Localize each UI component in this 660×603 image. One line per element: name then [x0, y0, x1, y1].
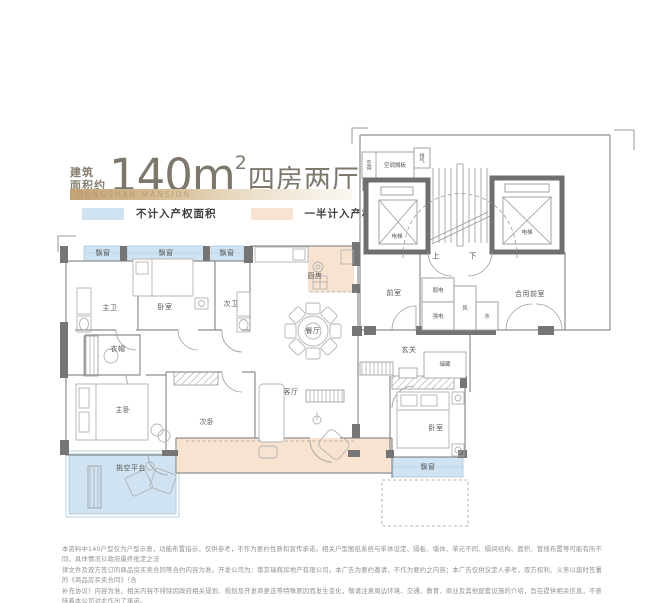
- label-exhaust: 排气: [419, 153, 426, 163]
- room-label-platform: 挑空平台: [116, 463, 146, 473]
- disclaimer-line: 本资料中140户型仅为户型示意，功能布置指示，仅供参考，不作为要约性质和宣传承诺…: [62, 545, 602, 566]
- room-label-kitchen: 厨房: [308, 271, 323, 281]
- room-label-living-room: 客厅: [284, 387, 299, 397]
- room-label-strong-electric: 强电: [432, 312, 443, 320]
- room-label-front-room: 前室: [387, 288, 402, 298]
- room-label-bay-window-2: 飘窗: [159, 248, 174, 258]
- elevator-right-shaft: [492, 178, 562, 252]
- room-label-dining-room: 餐厅: [306, 326, 321, 336]
- disclaimer-line: 律文件及双方签订的商品房买卖合同等合约内容为准。开发公司为：南京瑞辉房地产有限公…: [62, 566, 602, 587]
- zone-platform: [66, 451, 179, 517]
- room-label-bay-window-4: 飘窗: [421, 462, 436, 472]
- room-label-storage: 储藏: [439, 360, 450, 368]
- room-label-shared-front-room: 合用前室: [515, 289, 545, 299]
- disclaimer-line: 补充协议）内容为准。相关内容不排除因政府相关规划、规划及开发商更迭等特殊原因而发…: [62, 587, 602, 603]
- label-ac-shelf: 空调搁板: [384, 161, 406, 169]
- room-label-bedroom-top: 卧室: [158, 302, 173, 312]
- elevator-left-shaft: [366, 180, 428, 252]
- room-label-cloakroom: 衣帽: [111, 344, 126, 354]
- disclaimer: 本资料中140户型仅为户型示意，功能布置指示，仅供参考，不作为要约性质和宣传承诺…: [62, 545, 602, 603]
- stairs-down-label: 下: [469, 251, 477, 262]
- room-label-air-shaft: 风: [462, 304, 468, 312]
- room-label-master-bedroom: 主卧: [116, 405, 131, 415]
- room-label-foyer: 玄关: [402, 345, 417, 355]
- room-label-bay-window-1: 飘窗: [96, 248, 111, 258]
- room-label-elevator-right: 电梯: [521, 228, 532, 236]
- room-label-master-bath: 主卫: [103, 303, 118, 313]
- floorplan-drawing: [0, 0, 660, 603]
- room-label-water-shaft: 水: [484, 312, 490, 320]
- room-label-weak-electric: 弱电: [432, 286, 443, 294]
- room-label-second-bedroom: 次卧: [200, 417, 215, 427]
- room-label-bedroom-right: 卧室: [429, 423, 444, 433]
- stairs-up-label: 上: [432, 251, 440, 262]
- room-label-bay-window-3: 飘窗: [220, 248, 235, 258]
- room-label-second-bath: 次卫: [224, 299, 239, 309]
- flyer-page: 建筑 面积约 140m2 四房两厅两卫 DONGSHAN MANSION 不计入…: [0, 0, 660, 603]
- room-label-elevator-left: 电梯: [391, 232, 402, 240]
- label-ac: 空调: [366, 160, 373, 170]
